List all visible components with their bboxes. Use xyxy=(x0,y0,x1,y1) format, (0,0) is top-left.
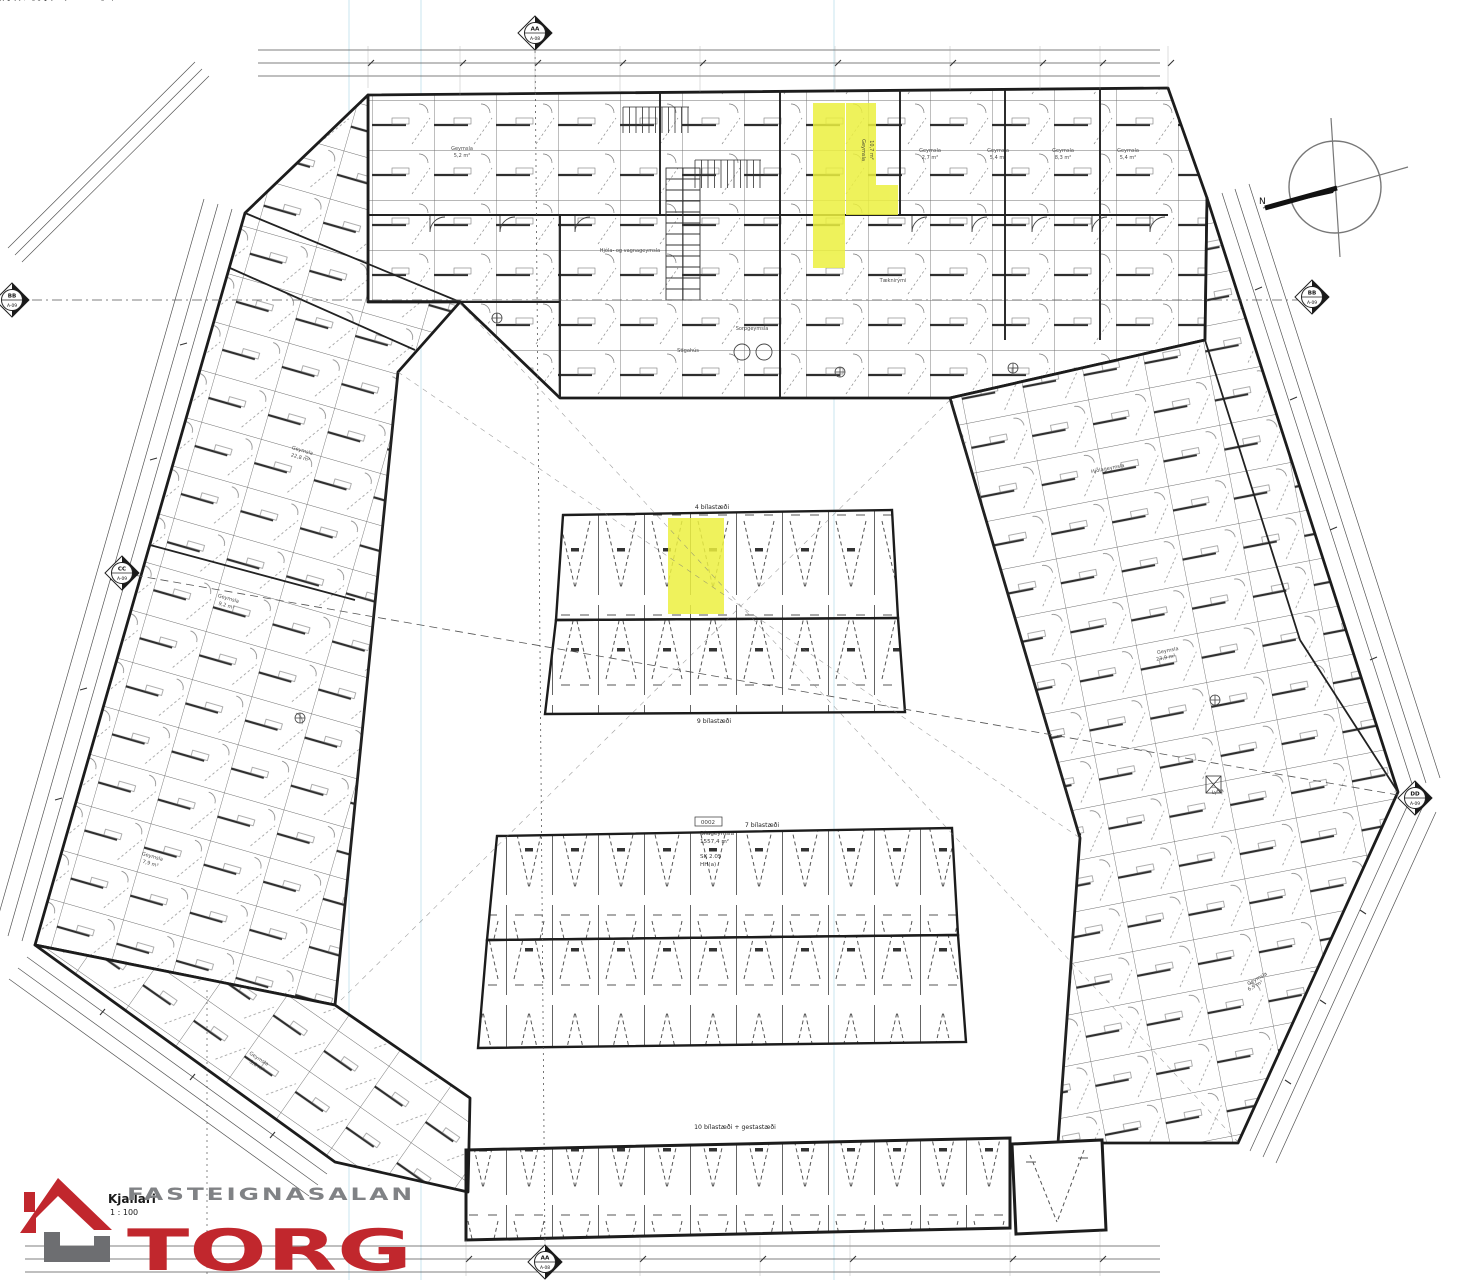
room-label: Hjóla- og vagnageymsla xyxy=(600,247,660,254)
room-label: Geymsla xyxy=(451,146,473,152)
center-note-block: Bílgeymslan er varin meðsjálfvirku vatns… xyxy=(0,0,146,2)
room-label: 5,2 m² xyxy=(454,153,470,159)
marker-sheet: A-09 xyxy=(117,576,127,582)
sheet-scale-label: 1 : 100 xyxy=(110,1208,138,1217)
room-label: Geymsla xyxy=(860,139,866,161)
marker-sheet: A-09 xyxy=(1410,801,1420,807)
room-label: 10,7 m² xyxy=(868,140,874,160)
room-label: Sorpgeymsla xyxy=(736,326,769,332)
parking-count-label: 7 bílastæði xyxy=(745,821,780,829)
center-note-line: þ.a.m. 2 stæði fyrir hreyfihamlaða og 1 … xyxy=(0,0,146,2)
unit-code-1: SK 2.05 xyxy=(700,854,722,860)
floorplan-scan-page: N AAA-08AAA-08CCA-09DDA-09BBA-09BBA-09 G… xyxy=(0,0,1466,1280)
compass-north-label: N xyxy=(1259,197,1266,207)
marker-id: AA xyxy=(541,1256,550,1262)
room-label: Geymsla xyxy=(1052,148,1074,154)
room-label: 8,3 m² xyxy=(1055,155,1071,161)
parking-strip-bottom xyxy=(466,1138,1106,1240)
highlight-parking-stall xyxy=(668,518,724,614)
room-label: Stigahús xyxy=(677,347,699,354)
highlight-storage-unit-2-foot xyxy=(846,185,898,215)
highlight-storage-unit-1 xyxy=(813,103,845,268)
unit-name: Bílageymsla xyxy=(700,830,734,837)
parking-count-label: 9 bílastæði xyxy=(697,717,732,725)
marker-id: CC xyxy=(118,567,126,573)
marker-sheet: A-08 xyxy=(540,1265,550,1271)
unit-area: 1557,4 m² xyxy=(700,838,729,845)
room-label: Geymsla xyxy=(919,148,941,154)
logo-brand-top: FASTEIGNASALAN xyxy=(127,1185,415,1205)
room-label: 5,4 m² xyxy=(990,155,1006,161)
logo-brand-main: TORG xyxy=(127,1218,412,1280)
room-label: Geymsla xyxy=(1117,148,1139,154)
unit-id: 0002 xyxy=(701,820,715,826)
parking-count-label: 4 bílastæði xyxy=(695,503,730,511)
marker-sheet: A-09 xyxy=(1307,300,1317,306)
parking-block-lower xyxy=(478,828,966,1048)
room-label: Geymsla xyxy=(987,148,1009,154)
unit-code-2: HH(a) xyxy=(700,862,716,868)
floorplan-drawing: N AAA-08AAA-08CCA-09DDA-09BBA-09BBA-09 G… xyxy=(0,0,1466,1280)
room-label: 5,4 m² xyxy=(1120,155,1136,161)
marker-sheet: A-08 xyxy=(530,36,540,42)
marker-id: BB xyxy=(1308,291,1317,297)
room-label: Tæknirými xyxy=(879,277,907,284)
room-label: 2,7 m² xyxy=(922,155,938,161)
marker-id: AA xyxy=(531,27,540,33)
marker-id: DD xyxy=(1410,792,1420,798)
parking-block-upper xyxy=(545,510,905,714)
parking-count-label: 10 bílastæði + gestastæði xyxy=(694,1123,776,1131)
marker-id: BB xyxy=(8,294,17,300)
marker-sheet: A-09 xyxy=(7,303,17,309)
